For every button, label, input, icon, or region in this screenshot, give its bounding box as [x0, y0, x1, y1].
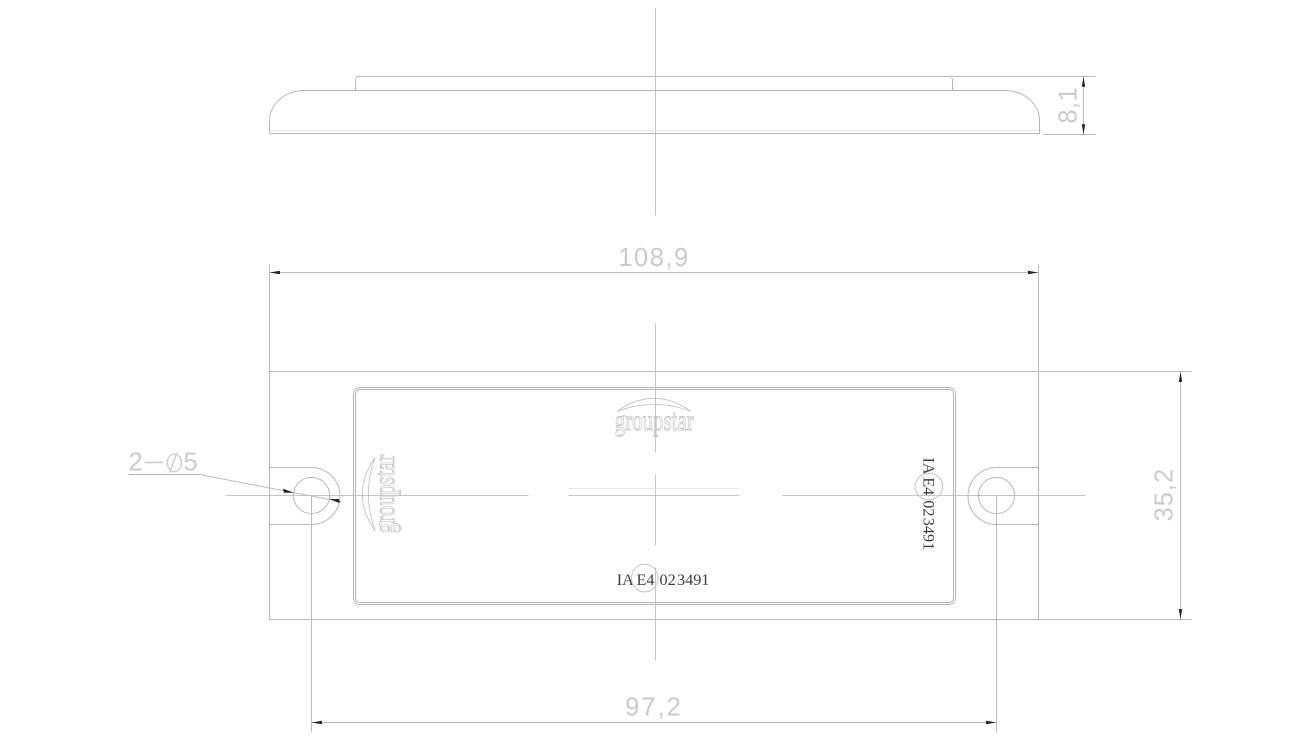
svg-text:108,9: 108,9	[618, 244, 689, 272]
svg-text:groupstar: groupstar	[615, 404, 694, 437]
svg-text:35,2: 35,2	[1151, 468, 1179, 522]
svg-text:3491: 3491	[920, 518, 938, 550]
svg-text:2: 2	[129, 449, 143, 477]
svg-text:IA: IA	[920, 458, 938, 475]
svg-text:E4: E4	[637, 571, 655, 589]
svg-text:groupstar: groupstar	[368, 454, 401, 533]
svg-text:02: 02	[660, 571, 676, 589]
svg-text:02: 02	[920, 500, 938, 516]
svg-text:3491: 3491	[677, 571, 709, 589]
svg-text:E4: E4	[920, 477, 938, 495]
svg-text:5: 5	[184, 449, 198, 477]
svg-text:97,2: 97,2	[625, 694, 683, 722]
svg-text:8,1: 8,1	[1055, 87, 1083, 124]
